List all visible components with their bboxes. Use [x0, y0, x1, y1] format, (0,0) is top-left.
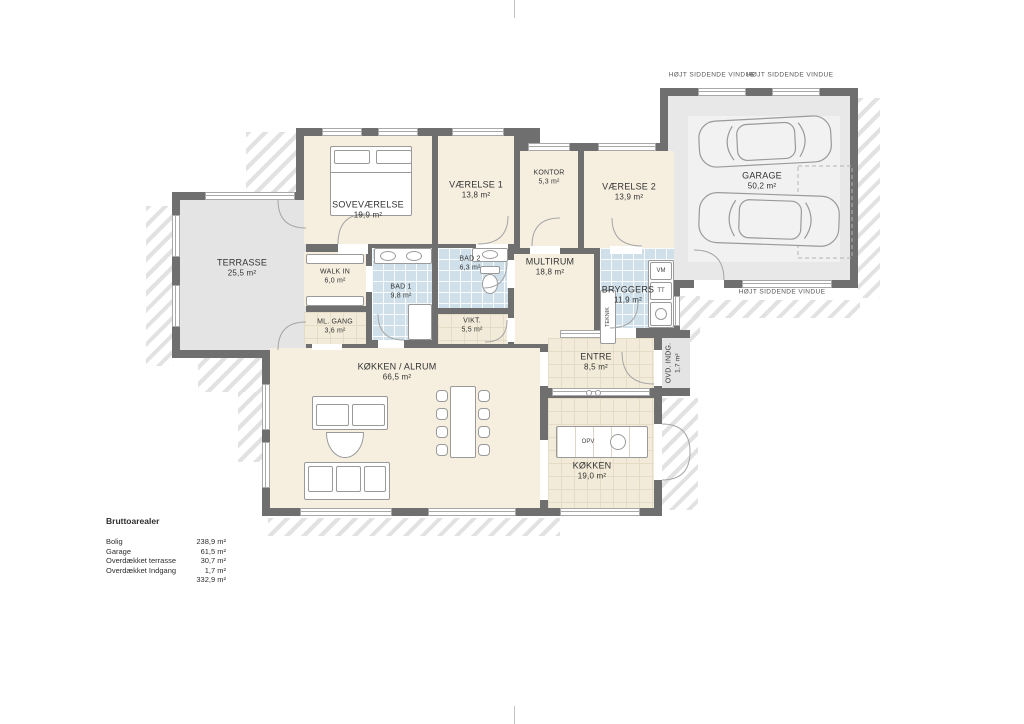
label-vaerelse2: VÆRELSE 2 13,9 m²	[602, 181, 656, 202]
area-label: Bolig	[106, 537, 123, 547]
room-area: 9,8 m²	[390, 292, 411, 301]
floorplan-canvas: TERRASSE 25,5 m² SOVEVÆRELSE 19,9 m² VÆR…	[0, 0, 1024, 724]
label-dishwasher: OPV	[582, 439, 595, 445]
door-arc	[485, 320, 507, 342]
room-area: 6,3 m²	[459, 264, 480, 273]
door-arc	[612, 218, 642, 246]
label-koekken: KØKKEN 19,0 m²	[573, 460, 612, 481]
room-name: SOVEVÆRELSE	[332, 199, 404, 210]
room-area: 50,2 m²	[742, 182, 782, 192]
room-area: 25,5 m²	[217, 269, 267, 279]
area-value: 30,7 m²	[201, 556, 226, 566]
room-name: KONTOR	[533, 169, 564, 178]
label-vaerelse1: VÆRELSE 1 13,8 m²	[449, 179, 503, 200]
door-arc	[278, 322, 306, 350]
area-value: 61,5 m²	[201, 547, 226, 557]
room-name: OVD. INDG.	[666, 343, 675, 384]
areas-table-row: Garage 61,5 m²	[106, 547, 226, 557]
room-name: MULTIRUM	[526, 256, 574, 267]
areas-table: Bruttoarealer Bolig 238,9 m² Garage 61,5…	[106, 516, 226, 585]
label-mlgang: ML. GANG 3,6 m²	[317, 318, 353, 336]
label-ovd-indg: OVD. INDG. 1,7 m²	[666, 343, 683, 384]
room-name: ENTRE	[580, 351, 612, 362]
label-koekken-alrum: KØKKEN / ALRUM 66,5 m²	[358, 361, 437, 382]
room-area: 3,6 m²	[317, 327, 353, 336]
label-bad1: BAD 1 9,8 m²	[390, 283, 411, 301]
note-highset-window: HØJT SIDDENDE VINDUE	[739, 289, 826, 296]
label-teknik: TEKNIK	[605, 307, 611, 327]
door-arc	[610, 302, 638, 328]
areas-table-title: Bruttoarealer	[106, 516, 226, 526]
room-area: 8,5 m²	[580, 363, 612, 373]
label-multirum: MULTIRUM 18,8 m²	[526, 256, 574, 277]
area-value: 1,7 m²	[205, 566, 226, 576]
area-total-value: 332,9 m²	[196, 575, 226, 585]
label-garage: GARAGE 50,2 m²	[742, 170, 782, 191]
room-area: 11,9 m²	[602, 296, 654, 306]
room-name: BAD 2	[459, 255, 480, 264]
room-name: VÆRELSE 2	[602, 181, 656, 192]
areas-table-row: Overdækket Indgang 1,7 m²	[106, 566, 226, 576]
door-arc	[478, 216, 508, 244]
area-value: 238,9 m²	[196, 537, 226, 547]
room-name: BAD 1	[390, 283, 411, 292]
room-name: KØKKEN	[573, 460, 612, 471]
room-name: VÆRELSE 1	[449, 179, 503, 190]
room-area: 66,5 m²	[358, 373, 437, 383]
room-area: 18,8 m²	[526, 268, 574, 278]
room-area: 6,0 m²	[320, 277, 350, 286]
label-sovevaerelse: SOVEVÆRELSE 19,9 m²	[332, 199, 404, 220]
room-area: 5,3 m²	[533, 178, 564, 187]
door-arc	[662, 452, 690, 480]
area-label: Overdækket Indgang	[106, 566, 176, 576]
room-name: KØKKEN / ALRUM	[358, 361, 437, 372]
door-arc	[622, 352, 654, 384]
label-tumble-dryer: TT	[657, 288, 664, 294]
doors-and-cars-layer	[0, 0, 1024, 724]
room-name: BRYGGERS	[602, 284, 654, 295]
note-highset-window: HØJT SIDDENDE VINDUE	[747, 72, 834, 79]
label-walkin: WALK IN 6,0 m²	[320, 268, 350, 286]
door-arc	[483, 262, 507, 288]
room-area: 5,5 m²	[461, 326, 482, 335]
room-name: TERRASSE	[217, 257, 267, 268]
label-entre: ENTRE 8,5 m²	[580, 351, 612, 372]
door-arcs	[278, 200, 724, 480]
areas-table-row: Overdækket terrasse 30,7 m²	[106, 556, 226, 566]
car	[698, 192, 840, 247]
car	[698, 115, 832, 168]
note-highset-window: HØJT SIDDENDE VINDUE	[669, 72, 756, 79]
room-name: ML. GANG	[317, 318, 353, 327]
area-label: Garage	[106, 547, 131, 557]
label-bad2: BAD 2 6,3 m²	[459, 255, 480, 273]
areas-table-total-row: 332,9 m²	[106, 575, 226, 585]
door-arc	[694, 250, 724, 280]
room-name: WALK IN	[320, 268, 350, 277]
room-area: 13,8 m²	[449, 191, 503, 201]
label-bryggers: BRYGGERS 11,9 m²	[602, 284, 654, 305]
areas-table-row: Bolig 238,9 m²	[106, 537, 226, 547]
label-vikt: VIKT. 5,5 m²	[461, 317, 482, 335]
label-terrasse: TERRASSE 25,5 m²	[217, 257, 267, 278]
area-label: Overdækket terrasse	[106, 556, 176, 566]
door-arc	[278, 200, 306, 228]
room-area: 19,0 m²	[573, 472, 612, 482]
label-kontor: KONTOR 5,3 m²	[533, 169, 564, 187]
door-arc	[662, 424, 690, 452]
room-area: 19,9 m²	[332, 211, 404, 221]
door-arc	[378, 314, 404, 340]
room-area: 1,7 m²	[674, 343, 682, 384]
room-name: VIKT.	[461, 317, 482, 326]
label-washing-machine: VM	[657, 268, 666, 274]
room-area: 13,9 m²	[602, 193, 656, 203]
door-arc	[532, 218, 560, 246]
room-name: GARAGE	[742, 170, 782, 181]
